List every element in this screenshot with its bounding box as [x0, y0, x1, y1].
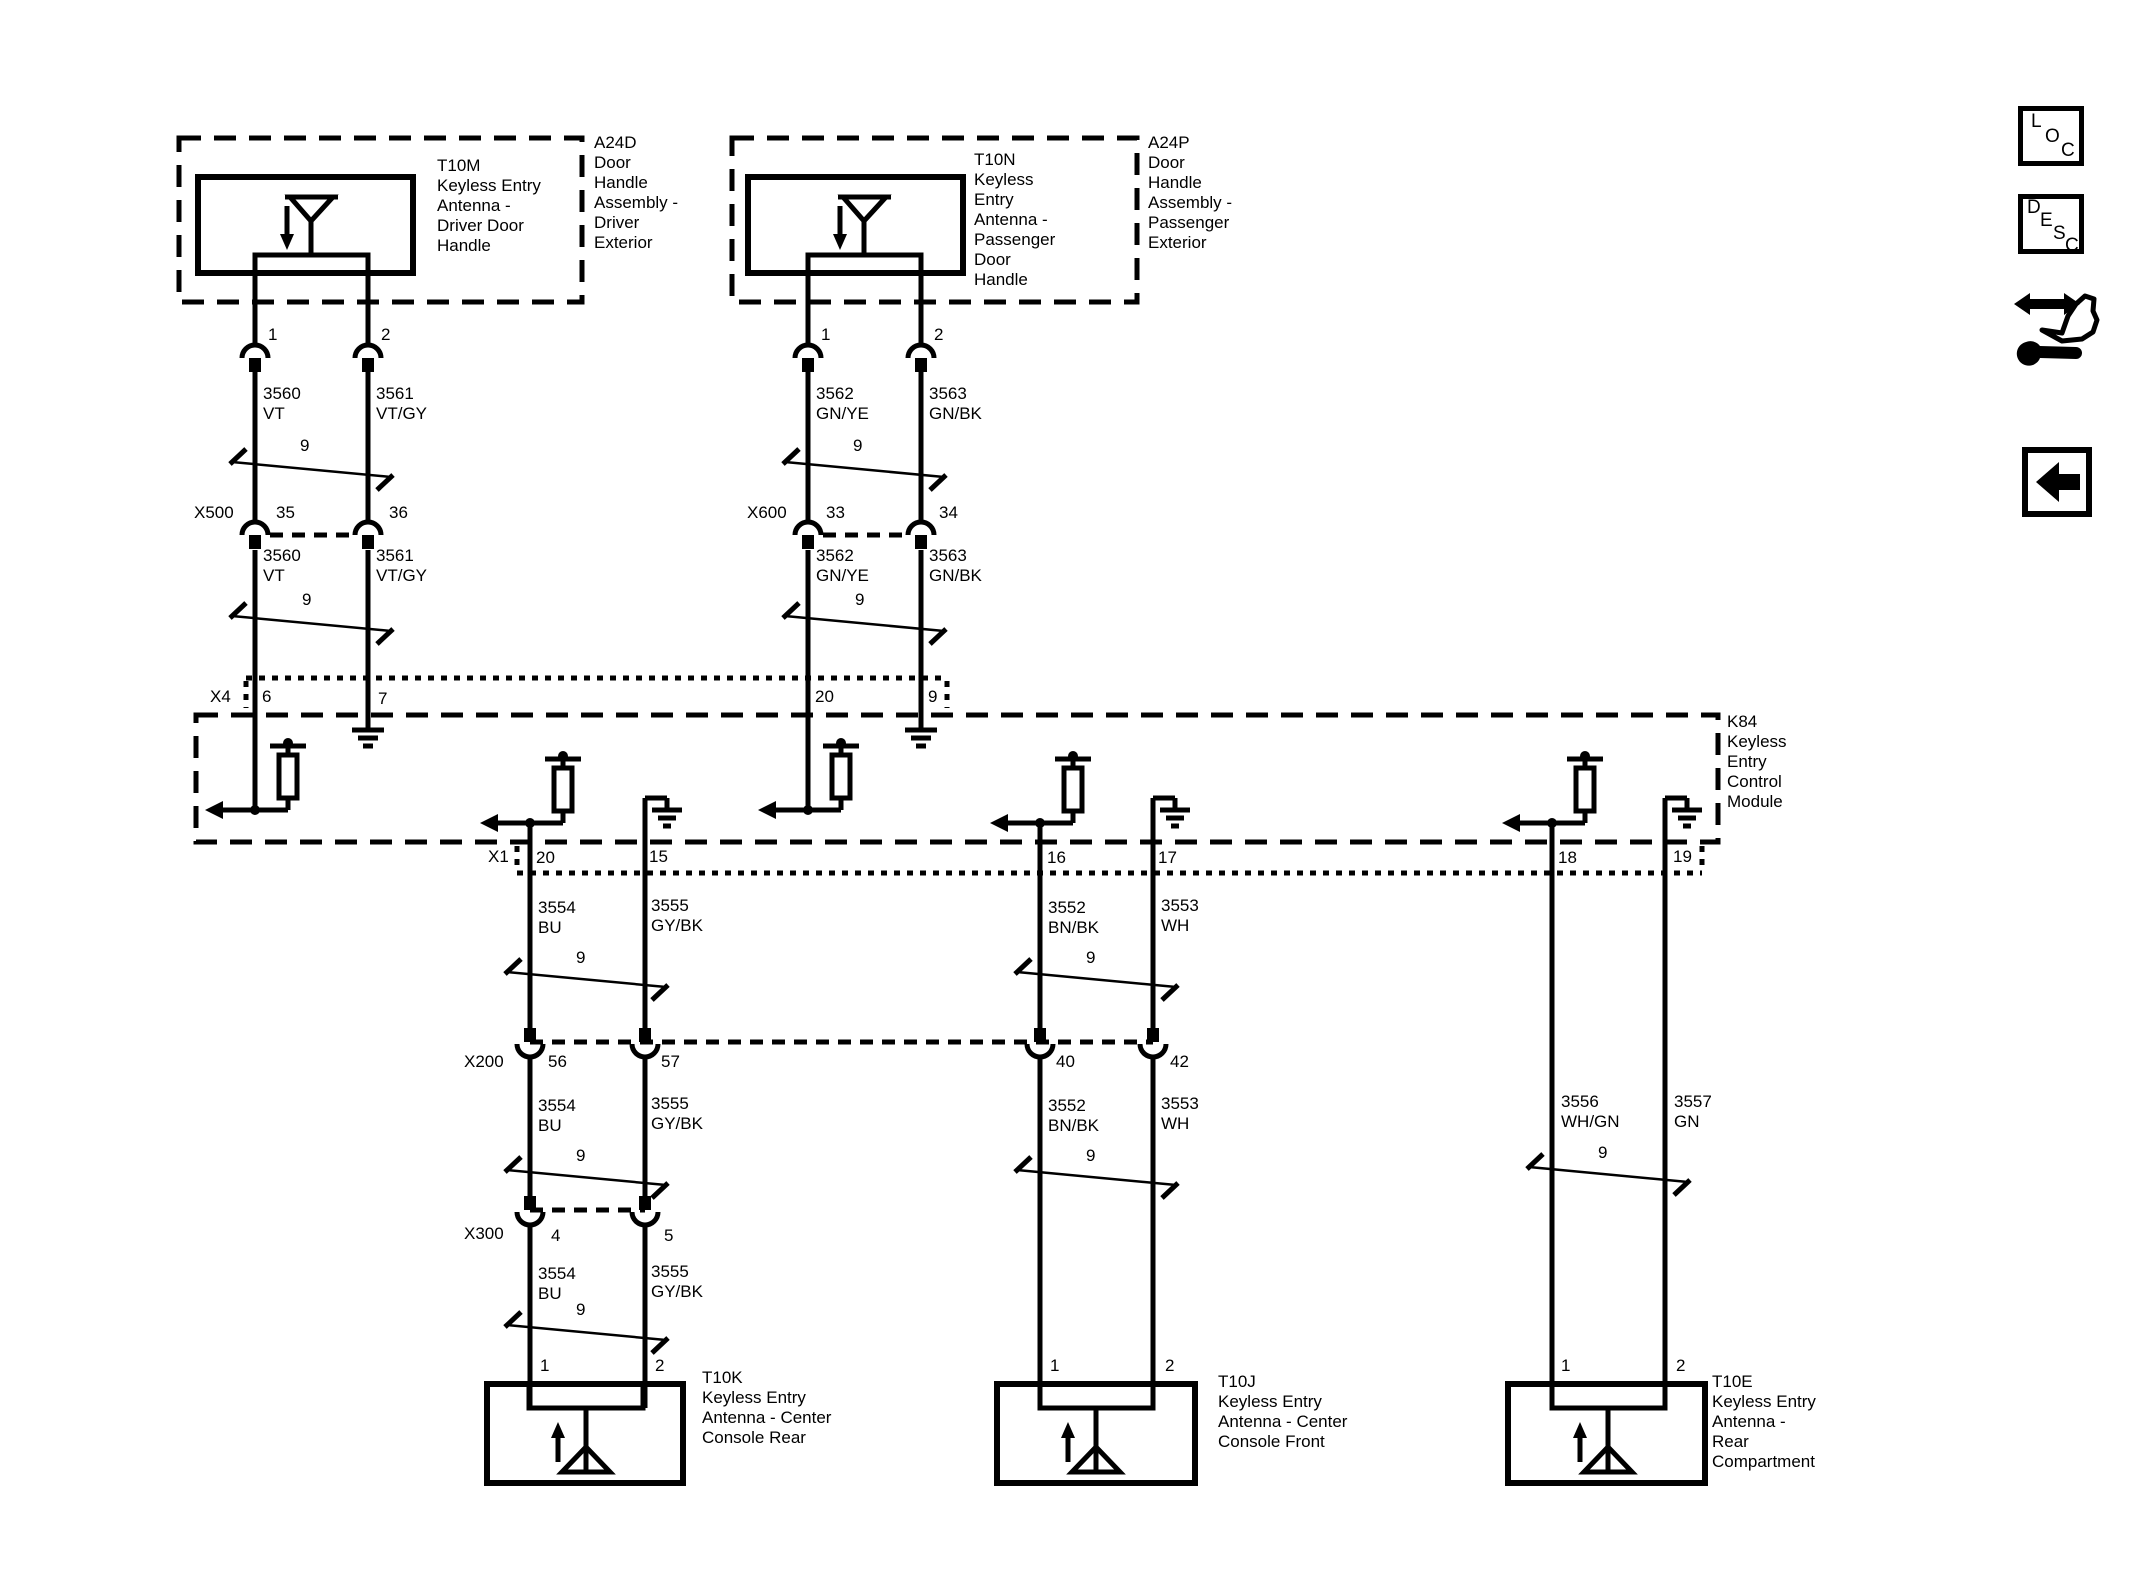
antenna-passenger-label: T10N Keyless Entry Antenna - Passenger D… [974, 150, 1055, 290]
pin-label: 2 [934, 325, 943, 345]
wire-label: 3553WH [1161, 1094, 1199, 1134]
twist-count-label: 9 [1086, 1146, 1095, 1166]
wire-label: 3560VT [263, 546, 301, 586]
pin-label: 19 [1673, 847, 1692, 867]
passenger-antenna-box [748, 177, 963, 273]
antenna-icon [833, 197, 891, 256]
pin-label: 35 [276, 503, 295, 523]
module-driver-circuit-x1-20 [480, 751, 581, 832]
wire-label: 3557GN [1674, 1092, 1712, 1132]
connector-x600-terminals [795, 522, 934, 549]
connector-x500-label: X500 [194, 503, 234, 523]
wire-label: 3554BU [538, 898, 576, 938]
wire-label: 3560VT [263, 384, 301, 424]
control-module-label: K84 Keyless Entry Control Module [1727, 712, 1787, 812]
wire-label: 3555GY/BK [651, 1262, 703, 1302]
wire-label: 3562GN/YE [816, 384, 869, 424]
pin-label: 56 [548, 1052, 567, 1072]
twist-count-label: 9 [1086, 948, 1095, 968]
ground-symbol-x1-19 [1665, 798, 1702, 826]
desc-letter: D [2027, 197, 2041, 219]
connector-x4-row [246, 678, 947, 708]
driver-antenna-box [198, 177, 413, 273]
twist-count-label: 9 [300, 436, 309, 456]
wire-label: 3553WH [1161, 896, 1199, 936]
ground-symbol-x1-15 [645, 798, 682, 826]
pin-label: 1 [540, 1356, 549, 1376]
pin-label: 7 [378, 689, 387, 709]
desc-letter: C [2065, 235, 2079, 257]
connector-x500-terminals [242, 522, 381, 549]
twist-count-label: 9 [576, 1146, 585, 1166]
pin-label: 33 [826, 503, 845, 523]
antenna-icon [1573, 1408, 1632, 1472]
schematic-drawing [0, 0, 2130, 1595]
module-driver-circuit-x1-18 [1502, 751, 1603, 832]
pin-label: 40 [1056, 1052, 1075, 1072]
wire-label: 3555GY/BK [651, 1094, 703, 1134]
twist-count-label: 9 [302, 590, 311, 610]
desc-button[interactable]: D E S C [2018, 194, 2084, 254]
module-driver-circuit-x1-16 [990, 751, 1091, 832]
pin-label: 4 [551, 1226, 560, 1246]
connector-x4-label: X4 [210, 687, 231, 707]
pin-label: 42 [1170, 1052, 1189, 1072]
pin-label: 2 [655, 1356, 664, 1376]
center-front-antenna-box [997, 1384, 1195, 1483]
ground-symbol-x4-7 [352, 730, 384, 746]
pin-label: 34 [939, 503, 958, 523]
pin-label: 9 [928, 687, 937, 707]
wire-label: 3555GY/BK [651, 896, 703, 936]
pin-label: 1 [1050, 1356, 1059, 1376]
terminal-arcs-top [242, 345, 934, 372]
center-rear-antenna-box [487, 1384, 683, 1483]
wire-label: 3554BU [538, 1264, 576, 1304]
wire-label: 3562GN/YE [816, 546, 869, 586]
passenger-assembly-dashed-box [732, 138, 1137, 302]
antenna-center-rear-label: T10K Keyless Entry Antenna - Center Cons… [702, 1368, 831, 1448]
twist-count-label: 9 [576, 948, 585, 968]
pin-label: 2 [1165, 1356, 1174, 1376]
pin-label: 15 [649, 847, 668, 867]
connector-x200-label: X200 [464, 1052, 504, 1072]
assembly-driver-label: A24D Door Handle Assembly - Driver Exter… [594, 133, 678, 253]
control-module-dashed-box [196, 715, 1718, 842]
twist-count-label: 9 [853, 436, 862, 456]
ground-symbol-x4-9 [905, 730, 937, 746]
loc-letter: O [2045, 126, 2060, 148]
wire-label: 3552BN/BK [1048, 898, 1099, 938]
desc-letter: S [2053, 223, 2066, 245]
pin-label: 2 [381, 325, 390, 345]
connector-x1-row [517, 846, 1702, 873]
connector-x1-label: X1 [488, 847, 509, 867]
antenna-rear-compartment-label: T10E Keyless Entry Antenna - Rear Compar… [1712, 1372, 1816, 1472]
pin-label: 17 [1158, 848, 1177, 868]
vehicle-repair-icon[interactable] [2014, 293, 2097, 366]
pin-label: 57 [661, 1052, 680, 1072]
twist-count-label: 9 [576, 1300, 585, 1320]
pin-label: 1 [268, 325, 277, 345]
pin-label: 5 [664, 1226, 673, 1246]
back-arrow-button[interactable] [2022, 447, 2092, 517]
pin-label: 6 [262, 687, 271, 707]
connector-x300-label: X300 [464, 1224, 504, 1244]
antenna-driver-label: T10M Keyless Entry Antenna - Driver Door… [437, 156, 541, 256]
back-arrow-icon [2028, 453, 2086, 511]
pin-label: 1 [1561, 1356, 1570, 1376]
pin-label: 36 [389, 503, 408, 523]
antenna-icon [551, 1408, 610, 1472]
pin-label: 2 [1676, 1356, 1685, 1376]
wire-label: 3552BN/BK [1048, 1096, 1099, 1136]
assembly-passenger-label: A24P Door Handle Assembly - Passenger Ex… [1148, 133, 1232, 253]
antenna-icon [1061, 1408, 1120, 1472]
rear-compartment-antenna-box [1508, 1384, 1705, 1483]
pin-label: 1 [821, 325, 830, 345]
desc-letter: E [2040, 210, 2053, 232]
antenna-icon [280, 197, 338, 256]
connector-x600-label: X600 [747, 503, 787, 523]
wire-label: 3556WH/GN [1561, 1092, 1620, 1132]
antenna-center-front-label: T10J Keyless Entry Antenna - Center Cons… [1218, 1372, 1347, 1452]
twist-count-label: 9 [855, 590, 864, 610]
loc-button[interactable]: L O C [2018, 106, 2084, 166]
pin-label: 16 [1047, 848, 1066, 868]
pin-label: 18 [1558, 848, 1577, 868]
wire-label: 3561VT/GY [376, 384, 427, 424]
ground-symbol-x1-17 [1153, 798, 1190, 826]
pin-label: 20 [536, 848, 555, 868]
wire-label: 3561VT/GY [376, 546, 427, 586]
pin-label: 20 [815, 687, 834, 707]
wiring-diagram-page: T10M Keyless Entry Antenna - Driver Door… [0, 0, 2130, 1595]
wire-label: 3563GN/BK [929, 546, 982, 586]
loc-letter: C [2061, 140, 2075, 162]
wire-label: 3563GN/BK [929, 384, 982, 424]
twist-count-label: 9 [1598, 1143, 1607, 1163]
wire-label: 3554BU [538, 1096, 576, 1136]
loc-letter: L [2031, 111, 2042, 133]
